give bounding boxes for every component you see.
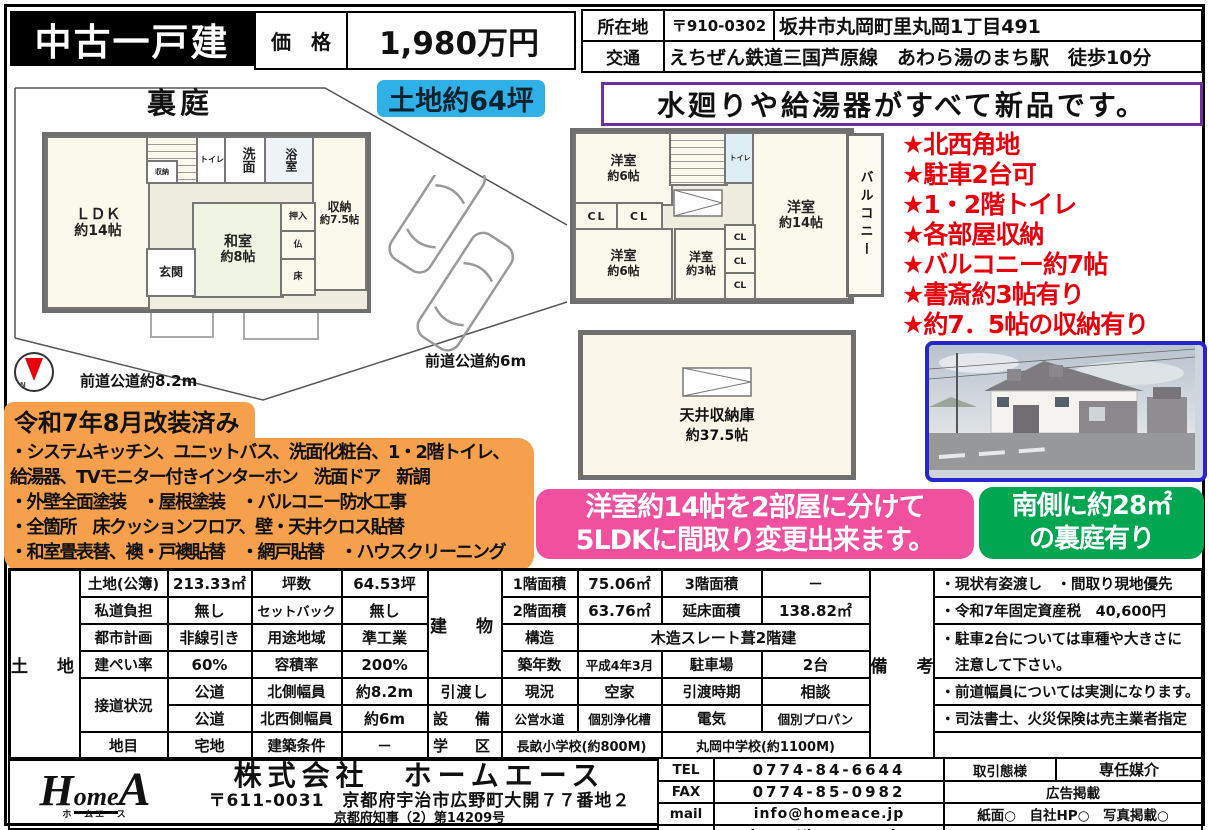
- ad-media: 紙面○ 自社HP○ 写真掲載○: [944, 803, 1202, 825]
- feature-item: ★約7．5帖の収納有り: [902, 310, 1207, 340]
- remark-row: ・駐車2台については車種や大きさに: [934, 624, 1203, 651]
- property-address: 坂井市丸岡町里丸岡1丁目491: [774, 10, 1202, 41]
- feature-item: ★1・2階トイレ: [902, 190, 1207, 220]
- room-ldk: ＬＤＫ 約14帖: [46, 136, 150, 309]
- detail-label: 用途地域: [252, 624, 342, 651]
- mail-value: info@homeace.jp: [714, 803, 944, 825]
- detail-label: 電気: [662, 705, 762, 732]
- property-photo-image: [929, 345, 1195, 470]
- ad-header: 広告掲載: [944, 781, 1202, 803]
- room-2f-d-name: 洋室: [689, 251, 713, 265]
- garden-line1: 南側に約28㎡: [1012, 490, 1171, 523]
- room-2f-d-size: 約3帖: [686, 265, 716, 278]
- feature-item: ★駐車2台可: [902, 160, 1207, 190]
- remark-row: ・司法書士、火災保険は売主業者指定: [934, 705, 1203, 732]
- road-label-east: 前道公道約6m: [425, 350, 526, 371]
- contact-table: TEL 0774-84-6644 取引態様 専任媒介 FAX 0774-85-0…: [657, 757, 1203, 830]
- remark-row: ・現状有姿渡し ・間取り現地優先: [934, 570, 1203, 598]
- floorplan-2f: 洋室 約6帖 トイレ 洋室 約14帖 CL CL 洋室 約6帖 洋室 約3帖 C…: [570, 128, 854, 304]
- compass-north-icon: N: [14, 352, 54, 392]
- attic-size: 約37.5帖: [686, 425, 749, 445]
- land-section-header: 土 地: [10, 570, 80, 760]
- remarks-section-header: 備 考: [870, 570, 934, 760]
- detail-value: 平成4年3月: [578, 651, 662, 678]
- renovation-line: 給湯器、TVモニター付きインターホン 洗面ドア 新調: [10, 465, 528, 490]
- oshiire-closet: 押入: [280, 202, 316, 232]
- detail-value: －: [762, 570, 870, 598]
- attic-storage-box: 天井収納庫 約37.5帖: [578, 330, 856, 480]
- url-label: URL: [658, 825, 714, 830]
- tokonoma: 床: [280, 258, 316, 296]
- balcony-label: バルコニー: [856, 170, 875, 260]
- detail-value: 63.76㎡: [578, 597, 662, 624]
- mail-label: mail: [658, 803, 714, 825]
- access-value: えちぜん鉄道三国芦原線 あわら湯のまち駅 徒歩10分: [664, 41, 1202, 72]
- detail-label: 容積率: [252, 651, 342, 678]
- renovation-title: 令和7年8月改装済み: [4, 402, 255, 438]
- feature-item: ★バルコニー約7帖: [902, 250, 1207, 280]
- japanese-room-name: 和室: [224, 234, 252, 250]
- detail-label: 構造: [502, 624, 578, 651]
- detail-label: 北側幅員: [252, 678, 342, 705]
- detail-label: 地目: [80, 732, 168, 760]
- property-photo: [925, 341, 1207, 482]
- detail-value: －: [342, 732, 428, 760]
- transaction-value: 専任媒介: [1056, 758, 1202, 781]
- bathroom-label: 浴室: [283, 148, 297, 172]
- road-label-west: 前道公道約8.2m: [80, 370, 197, 391]
- company-name: 株式会社 ホームエース: [180, 761, 659, 791]
- price-value: 1,980万円: [344, 11, 576, 70]
- japanese-room-size: 約8帖: [220, 251, 255, 266]
- storage-7-5-name: 収納: [327, 201, 351, 215]
- ad-note: インターネット掲載はすべて不可: [944, 825, 1202, 830]
- detail-value: 60%: [168, 651, 252, 678]
- feature-item: ★北西角地: [902, 130, 1207, 160]
- logo-letter-a: A: [118, 763, 150, 816]
- storage-small: 収納: [146, 160, 178, 184]
- access-label: 交通: [582, 41, 664, 72]
- handover-section-header: 引渡し: [428, 678, 502, 705]
- butsuma: 仏: [280, 230, 316, 260]
- ceiling-hatch-icon: [672, 186, 724, 220]
- remark-row: ・前道幅員については実測になります。: [934, 678, 1203, 705]
- property-type-banner: 中古一戸建: [10, 11, 254, 66]
- location-label: 所在地: [582, 10, 664, 41]
- room-ldk-size: 約14帖: [74, 223, 121, 239]
- detail-label: 引渡時期: [662, 678, 762, 705]
- renovation-block: 令和7年8月改装済み ・システムキッチン、ユニットバス、洗面化粧台、1・2階トイ…: [4, 402, 534, 571]
- fax-value: 0774-85-0982: [714, 781, 944, 803]
- location-info-table: 所在地 〒910-0302 坂井市丸岡町里丸岡1丁目491 交通 えちぜん鉄道三…: [581, 9, 1203, 73]
- transaction-label: 取引態様: [944, 758, 1056, 781]
- room-2f-a-size: 約6帖: [607, 170, 639, 184]
- postal-code: 〒910-0302: [664, 10, 774, 41]
- washroom: 洗面: [224, 136, 268, 184]
- detail-label: 1階面積: [502, 570, 578, 598]
- tel-value: 0774-84-6644: [714, 758, 944, 781]
- company-license: 京都府知事（2）第14209号: [180, 811, 659, 826]
- detail-value: 200%: [342, 651, 428, 678]
- attic-name: 天井収納庫: [679, 404, 754, 425]
- detail-label: 駐車場: [662, 651, 762, 678]
- remark-row: ・令和7年固定資産税 40,600円: [934, 597, 1203, 624]
- renovation-line: ・和室畳表替、襖・戸襖貼替 ・網戸貼替 ・ハウスクリーニング: [10, 540, 528, 565]
- room-2f-b-size: 約14帖: [779, 217, 823, 232]
- land-size-badge: 土地約64坪: [377, 80, 545, 117]
- detail-value: 空家: [578, 678, 662, 705]
- company-logo: HomeA ホームエース: [10, 768, 180, 819]
- detail-value: 75.06㎡: [578, 570, 662, 598]
- renovation-line: ・外壁全面塗装 ・屋根塗装 ・バルコニー防水工事: [10, 490, 528, 515]
- storage-7-5-size: 約7.5帖: [320, 214, 360, 226]
- parked-cars-drawing: [360, 175, 570, 365]
- layout-change-line2: 5LDKに間取り変更出来ます。: [576, 524, 935, 557]
- room-2f-a: 洋室 約6帖: [574, 132, 673, 206]
- detail-value: 長畝小学校(約800M): [502, 732, 662, 760]
- balcony: バルコニー: [846, 133, 884, 297]
- storage-7-5: 収納 約7.5帖: [312, 136, 367, 291]
- equipment-section-header: 設 備: [428, 705, 502, 732]
- new-equipment-banner: 水廻りや給湯器がすべて新品です。: [601, 82, 1203, 126]
- garden-banner: 南側に約28㎡ の裏庭有り: [979, 487, 1204, 559]
- detail-label: 接道状況: [80, 678, 168, 732]
- detail-value: 約8.2m: [342, 678, 428, 705]
- feature-item: ★書斎約3帖有り: [902, 280, 1207, 310]
- detail-label: 3階面積: [662, 570, 762, 598]
- room-2f-c-size: 約6帖: [607, 265, 639, 279]
- detail-label: セットバック: [252, 597, 342, 624]
- renovation-lines: ・システムキッチン、ユニットバス、洗面化粧台、1・2階トイレ、 給湯器、TVモニ…: [4, 438, 534, 571]
- room-2f-d: 洋室 約3帖: [674, 228, 728, 300]
- detail-label: 建ぺい率: [80, 651, 168, 678]
- detail-label: 2階面積: [502, 597, 578, 624]
- detail-value: 宅地: [168, 732, 252, 760]
- detail-value: 個別浄化槽: [578, 705, 662, 732]
- detail-value: 2台: [762, 651, 870, 678]
- feature-item: ★各部屋収納: [902, 220, 1207, 250]
- detail-value: 丸岡中学校(約1100M): [662, 732, 870, 760]
- detail-label: 築年数: [502, 651, 578, 678]
- remark-row: [934, 732, 1203, 760]
- closet-cl-5: CL: [724, 272, 756, 300]
- logo-letter-h: H: [39, 766, 73, 815]
- building-section-header: 建 物: [428, 570, 502, 679]
- fax-label: FAX: [658, 781, 714, 803]
- detail-label: 建築条件: [252, 732, 342, 760]
- detail-label: 北西側幅員: [252, 705, 342, 732]
- garden-line2: の裏庭有り: [1029, 523, 1154, 556]
- room-ldk-name: ＬＤＫ: [75, 206, 120, 223]
- room-2f-c: 洋室 約6帖: [574, 228, 673, 300]
- real-estate-flyer: 中古一戸建 価 格 1,980万円 所在地 〒910-0302 坂井市丸岡町里丸…: [0, 0, 1209, 830]
- layout-change-line1: 洋室約14帖を2部屋に分けて: [585, 491, 924, 524]
- detail-label: 私道負担: [80, 597, 168, 624]
- attic-hatch-icon: [681, 366, 753, 398]
- detail-label: 公営水道: [502, 705, 578, 732]
- renovation-line: ・システムキッチン、ユニットバス、洗面化粧台、1・2階トイレ、: [10, 440, 528, 465]
- room-2f-b-name: 洋室: [787, 200, 815, 216]
- bathroom: 浴室: [264, 136, 316, 184]
- back-garden-label: 裏庭: [147, 80, 213, 122]
- room-2f-c-name: 洋室: [610, 250, 636, 265]
- detail-label: 現況: [502, 678, 578, 705]
- detail-value: 非線引き: [168, 624, 252, 651]
- tel-label: TEL: [658, 758, 714, 781]
- detail-value: 公道: [168, 705, 252, 732]
- detail-label: 坪数: [252, 570, 342, 598]
- property-detail-table: 土 地 土地(公簿) 213.33㎡ 坪数 64.53坪 建 物 1階面積 75…: [8, 568, 1204, 761]
- detail-value: 64.53坪: [342, 570, 428, 598]
- stairs-2f: [669, 132, 728, 186]
- logo-subtext: ホームエース: [10, 811, 180, 819]
- detail-label: 延床面積: [662, 597, 762, 624]
- company-address: 〒611-0031 京都府宇治市広野町大開７７番地２: [180, 791, 659, 811]
- washroom-label: 洗面: [239, 147, 254, 173]
- feature-list: ★北西角地 ★駐車2台可 ★1・2階トイレ ★各部屋収納 ★バルコニー約7帖 ★…: [902, 130, 1207, 340]
- room-2f-b: 洋室 約14帖: [752, 132, 850, 300]
- detail-value: 約6m: [342, 705, 428, 732]
- company-block: HomeA ホームエース 株式会社 ホームエース 〒611-0031 京都府宇治…: [8, 757, 661, 830]
- japanese-room: 和室 約8帖: [192, 202, 284, 298]
- entrance-genkan: 玄関: [146, 248, 196, 297]
- layout-change-banner: 洋室約14帖を2部屋に分けて 5LDKに間取り変更出来ます。: [536, 489, 974, 559]
- detail-value: 公道: [168, 678, 252, 705]
- detail-value: 個別プロパン: [762, 705, 870, 732]
- detail-label: 土地(公簿): [80, 570, 168, 598]
- price-label: 価 格: [254, 11, 348, 70]
- remark-row: 注意して下さい。: [934, 651, 1203, 678]
- renovation-line: ・全箇所 床クッションフロア、壁・天井クロス貼替: [10, 515, 528, 540]
- floorplan-1f: ＬＤＫ 約14帖 収納 トイレ 洗面 浴室 収納 約7.5帖 和室 約8帖 押入…: [42, 132, 371, 313]
- school-section-header: 学 区: [428, 732, 502, 760]
- detail-value: 138.82㎡: [762, 597, 870, 624]
- room-2f-a-name: 洋室: [610, 155, 636, 170]
- detail-value: 相談: [762, 678, 870, 705]
- url-value: http://homeace.jp: [714, 825, 944, 830]
- detail-value: 準工業: [342, 624, 428, 651]
- detail-value: 無し: [342, 597, 428, 624]
- detail-value: 213.33㎡: [168, 570, 252, 598]
- detail-value: 木造スレート葺2階建: [578, 624, 870, 651]
- detail-value: 無し: [168, 597, 252, 624]
- detail-label: 都市計画: [80, 624, 168, 651]
